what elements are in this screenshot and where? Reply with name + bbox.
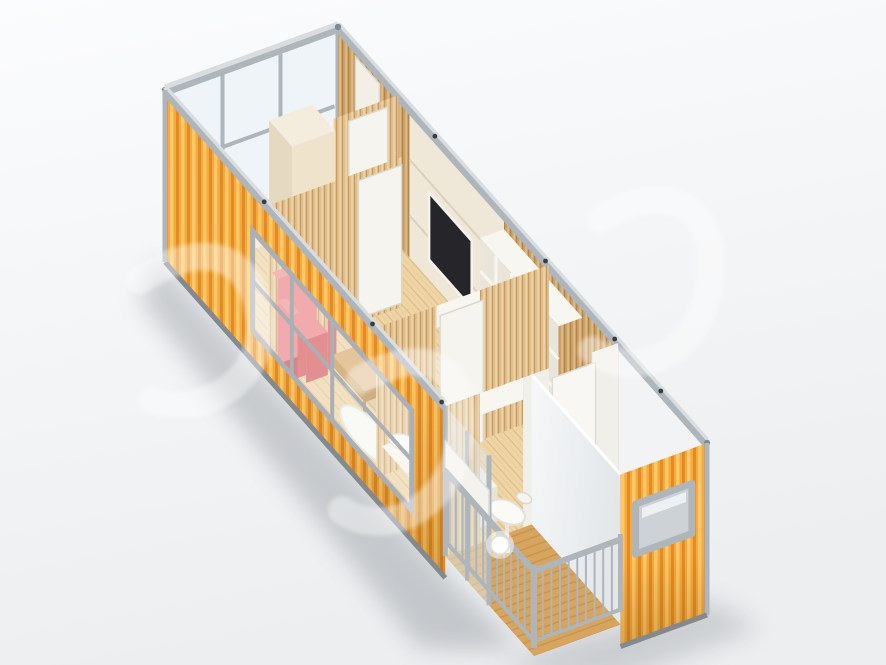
rim-bolt [543,259,548,264]
rim-bolt [658,389,663,394]
lamp-body [491,536,509,554]
container-house-render [0,0,886,665]
rim-bolt [262,199,267,204]
rim-bolt [433,134,438,139]
corner-fitting [335,24,341,30]
se-end-wall [621,443,708,647]
rim-bolt [370,322,375,327]
living-door [358,165,401,319]
render-stage: Isometric 3D cutaway rendering of a pref… [0,0,886,665]
rim-bolt [439,400,444,405]
rim-bolt [612,337,617,342]
crystal-lamp [486,531,514,559]
